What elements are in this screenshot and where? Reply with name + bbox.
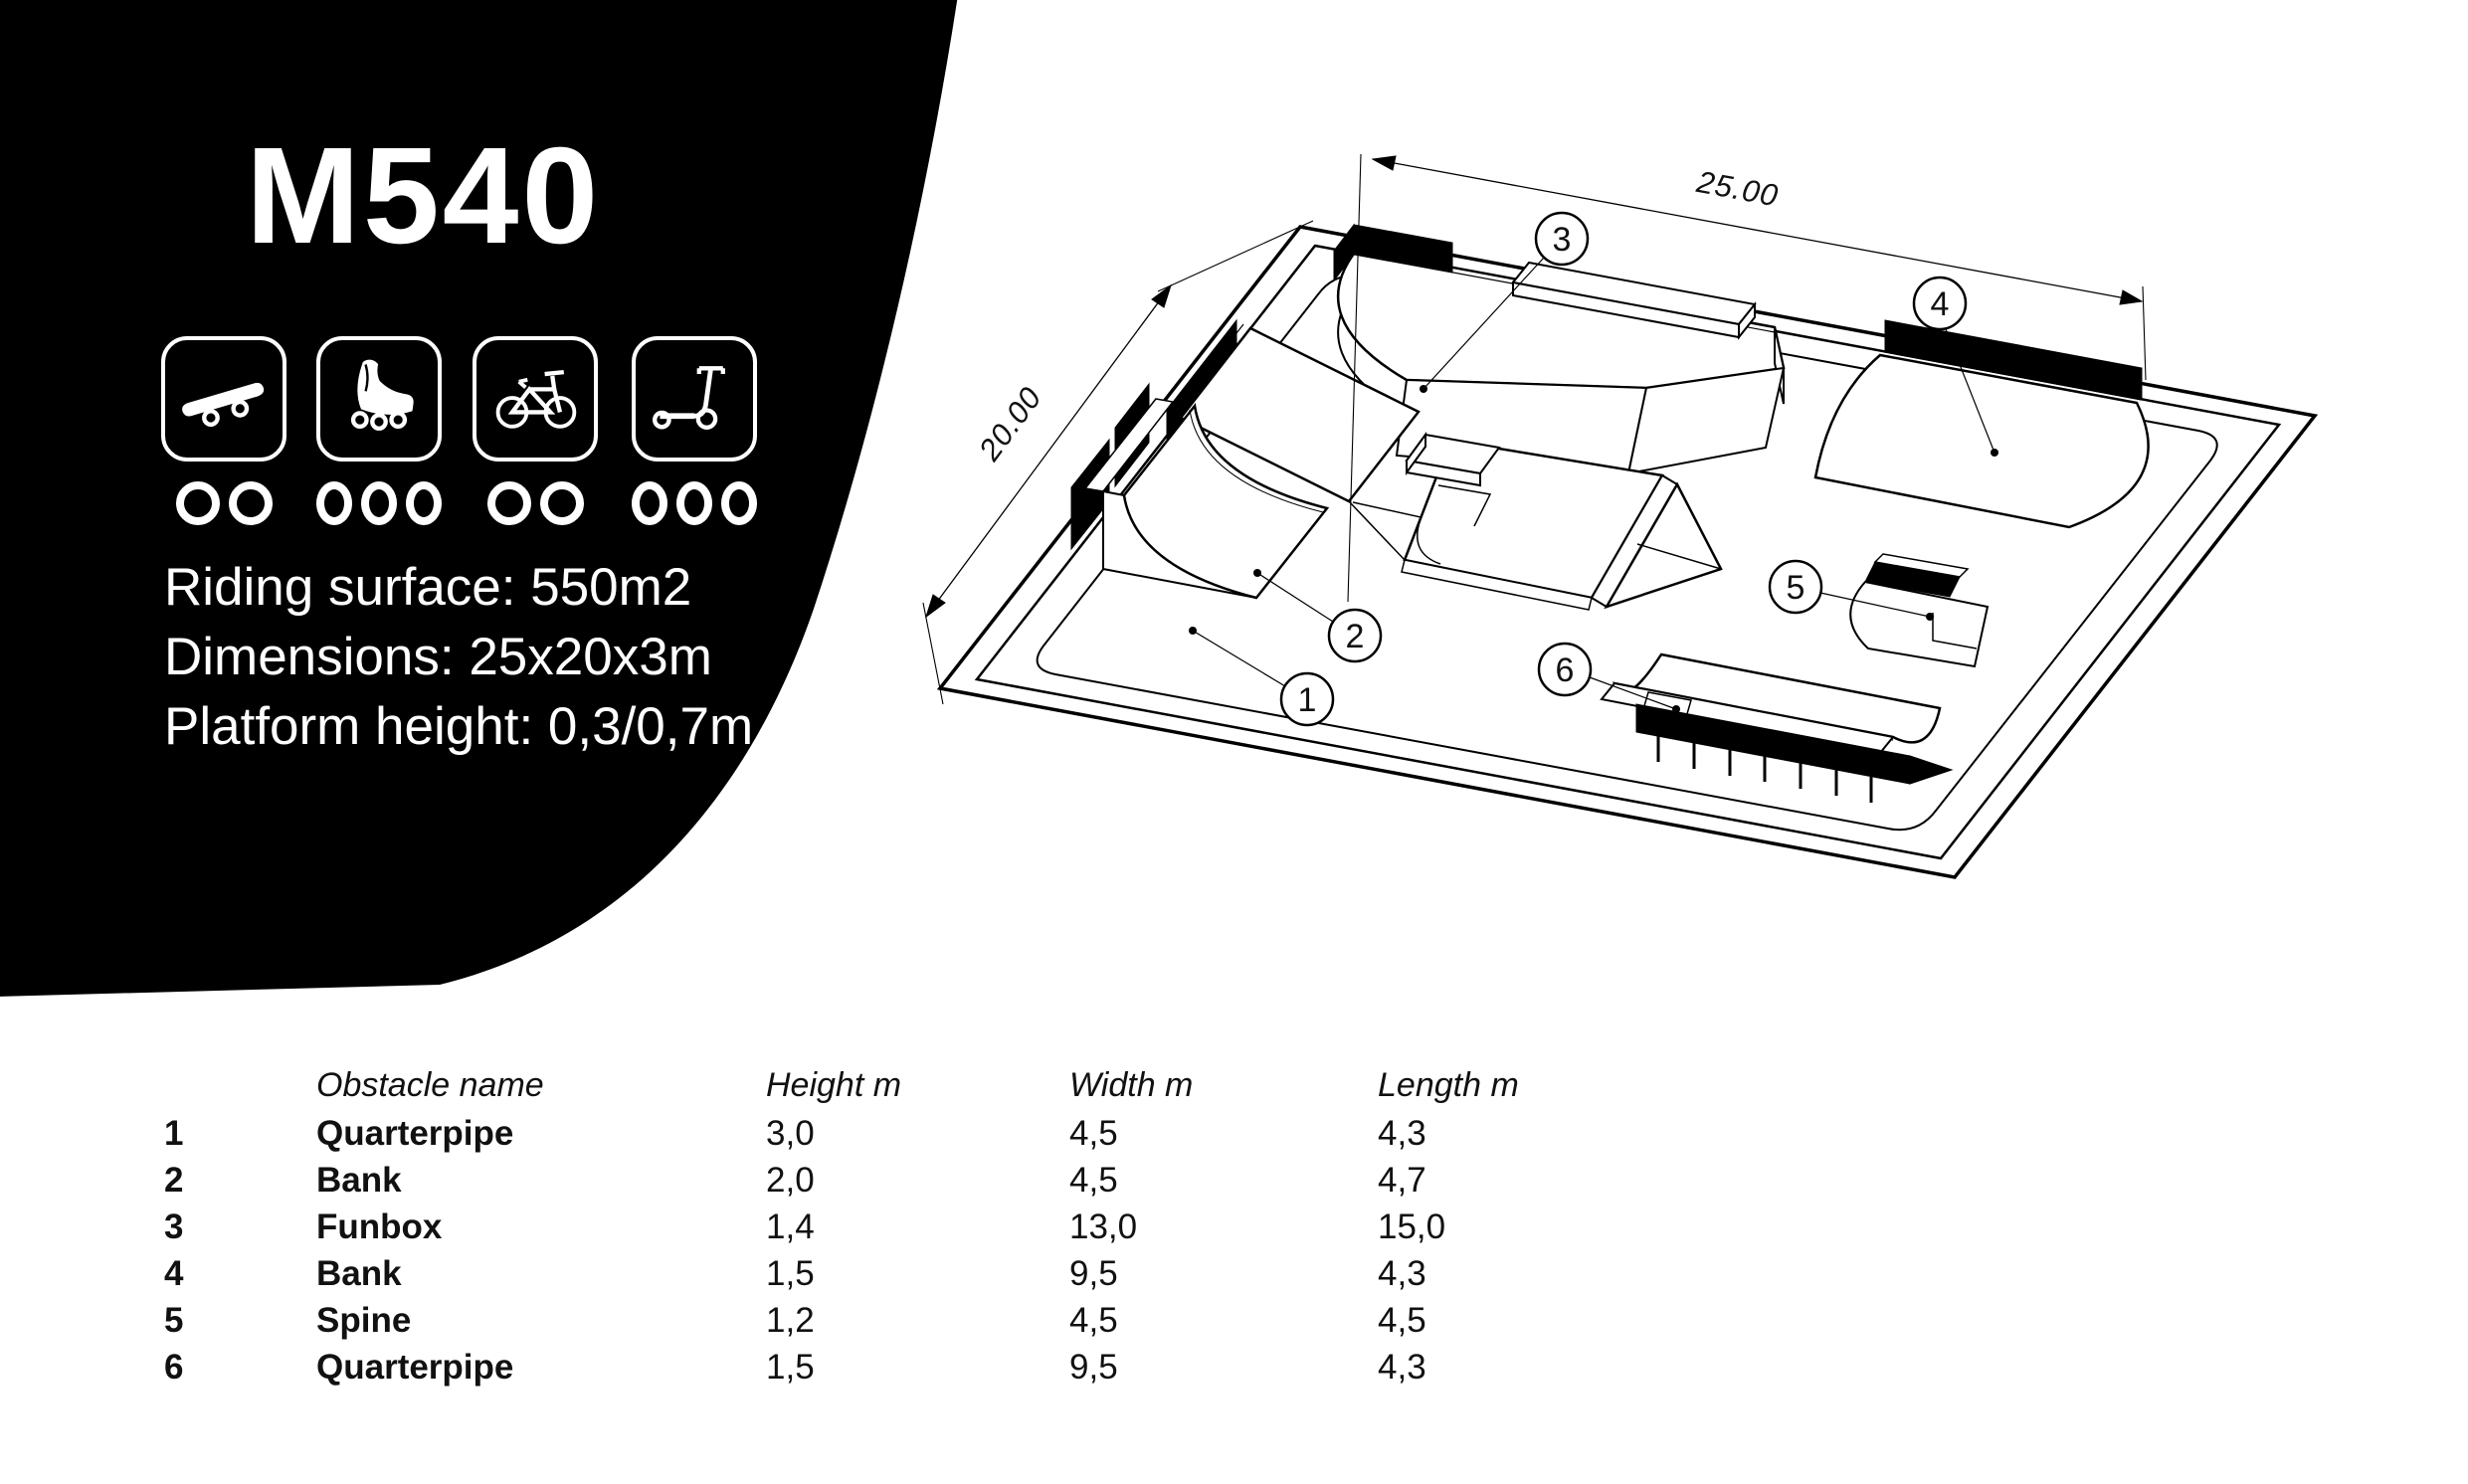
table-row: 4 Bank 1,5 9,5 4,3 [0,1254,2468,1302]
bmx-bike-icon [473,336,598,462]
spec-sheet: M540 [0,0,2468,1484]
bank-4 [1815,320,2149,527]
table-row: 3 Funbox 1,4 13,0 15,0 [0,1207,2468,1255]
row-num: 1 [164,1114,183,1154]
col-header-height: Height m [766,1066,901,1105]
difficulty-dots [632,481,757,525]
row-length: 4,3 [1378,1348,1426,1388]
svg-text:4: 4 [1931,285,1950,323]
icon-cell-bmx [473,336,598,535]
row-length: 4,7 [1378,1161,1426,1201]
row-length: 15,0 [1378,1207,1445,1247]
row-name: Funbox [316,1207,442,1247]
skatepark-isometric-drawing: 25.00 20.00 1 2 3 4 5 [895,60,2387,995]
difficulty-dot [721,481,757,525]
row-length: 4,5 [1378,1301,1426,1341]
row-name: Bank [316,1161,402,1201]
row-length: 4,3 [1378,1114,1426,1154]
difficulty-dot [229,481,273,525]
row-num: 5 [164,1301,183,1341]
row-num: 6 [164,1348,183,1388]
table-header-row: Obstacle name Height m Width m Length m [0,1066,2468,1114]
row-width: 4,5 [1069,1161,1118,1201]
difficulty-dots [316,481,442,525]
difficulty-dot [176,481,220,525]
difficulty-dot [316,481,352,525]
dim-depth-label: 20.00 [971,380,1048,467]
table-row: 1 Quarterpipe 3,0 4,5 4,3 [0,1114,2468,1162]
difficulty-dot [406,481,442,525]
hero-specs: Riding surface: 550m2 Dimensions: 25x20x… [164,553,753,762]
table-row: 5 Spine 1,2 4,5 4,5 [0,1301,2468,1349]
svg-text:5: 5 [1787,569,1805,607]
quarterpipe-6 [1602,654,1952,803]
difficulty-dot [540,481,584,525]
row-height: 1,5 [766,1348,815,1388]
spine-5 [1850,554,1988,666]
row-height: 1,2 [766,1301,815,1341]
col-header-width: Width m [1069,1066,1193,1105]
row-width: 13,0 [1069,1207,1137,1247]
scooter-icon [632,336,757,462]
row-height: 1,4 [766,1207,815,1247]
row-length: 4,3 [1378,1254,1426,1294]
spec-riding-surface: Riding surface: 550m2 [164,553,753,623]
dim-width-label: 25.00 [1693,164,1782,214]
skateboard-icon [161,336,286,462]
svg-text:3: 3 [1553,221,1572,259]
difficulty-dot [676,481,712,525]
svg-text:6: 6 [1556,651,1575,689]
model-title: M540 [246,127,601,265]
row-num: 3 [164,1207,183,1247]
difficulty-dots [473,481,598,525]
table-row: 2 Bank 2,0 4,5 4,7 [0,1161,2468,1208]
svg-text:1: 1 [1298,681,1317,719]
row-height: 2,0 [766,1161,815,1201]
row-width: 4,5 [1069,1301,1118,1341]
spec-platform-height: Platform height: 0,3/0,7m [164,692,753,762]
icon-cell-inline-skates [316,336,442,535]
row-name: Quarterpipe [316,1348,513,1388]
row-num: 2 [164,1161,183,1201]
difficulty-dot [361,481,397,525]
floor-joint [1349,501,1405,560]
row-width: 4,5 [1069,1114,1118,1154]
row-height: 3,0 [766,1114,815,1154]
icon-cell-scooter [632,336,757,535]
row-width: 9,5 [1069,1348,1118,1388]
row-height: 1,5 [766,1254,815,1294]
row-name: Bank [316,1254,402,1294]
row-num: 4 [164,1254,183,1294]
difficulty-dot [632,481,667,525]
spec-dimensions: Dimensions: 25x20x3m [164,623,753,692]
col-header-name: Obstacle name [316,1066,544,1105]
svg-text:2: 2 [1346,618,1365,655]
row-width: 9,5 [1069,1254,1118,1294]
row-name: Quarterpipe [316,1114,513,1154]
inline-skates-icon [316,336,442,462]
table-row: 6 Quarterpipe 1,5 9,5 4,3 [0,1348,2468,1395]
col-header-length: Length m [1378,1066,1519,1105]
row-name: Spine [316,1301,411,1341]
difficulty-dot [487,481,531,525]
icon-cell-skateboard [161,336,286,535]
difficulty-dots [161,481,286,525]
